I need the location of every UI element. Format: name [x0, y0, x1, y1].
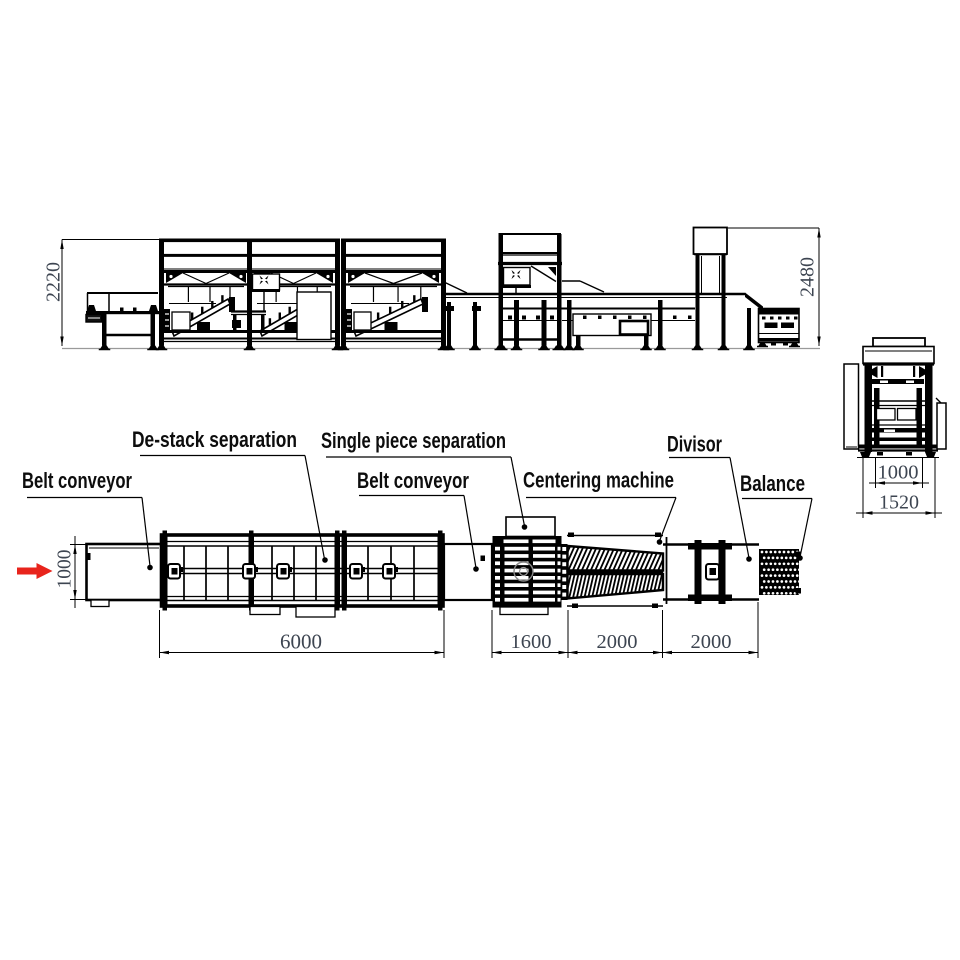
svg-text:2000: 2000	[691, 631, 732, 653]
svg-text:1520: 1520	[879, 492, 919, 514]
svg-text:Divisor: Divisor	[667, 432, 722, 457]
svg-text:Belt conveyor: Belt conveyor	[357, 468, 469, 493]
svg-text:1600: 1600	[511, 631, 552, 653]
svg-text:De-stack separation: De-stack separation	[132, 427, 297, 452]
svg-text:2480: 2480	[797, 257, 819, 297]
svg-text:6000: 6000	[280, 630, 322, 654]
svg-text:Centering machine: Centering machine	[523, 468, 674, 493]
svg-text:Single piece separation: Single piece separation	[321, 428, 506, 453]
svg-text:2000: 2000	[597, 631, 638, 653]
svg-text:Belt conveyor: Belt conveyor	[22, 468, 132, 493]
svg-text:1000: 1000	[55, 550, 76, 589]
svg-text:Balance: Balance	[740, 471, 805, 496]
svg-text:2220: 2220	[43, 262, 65, 302]
svg-text:1000: 1000	[878, 462, 919, 484]
